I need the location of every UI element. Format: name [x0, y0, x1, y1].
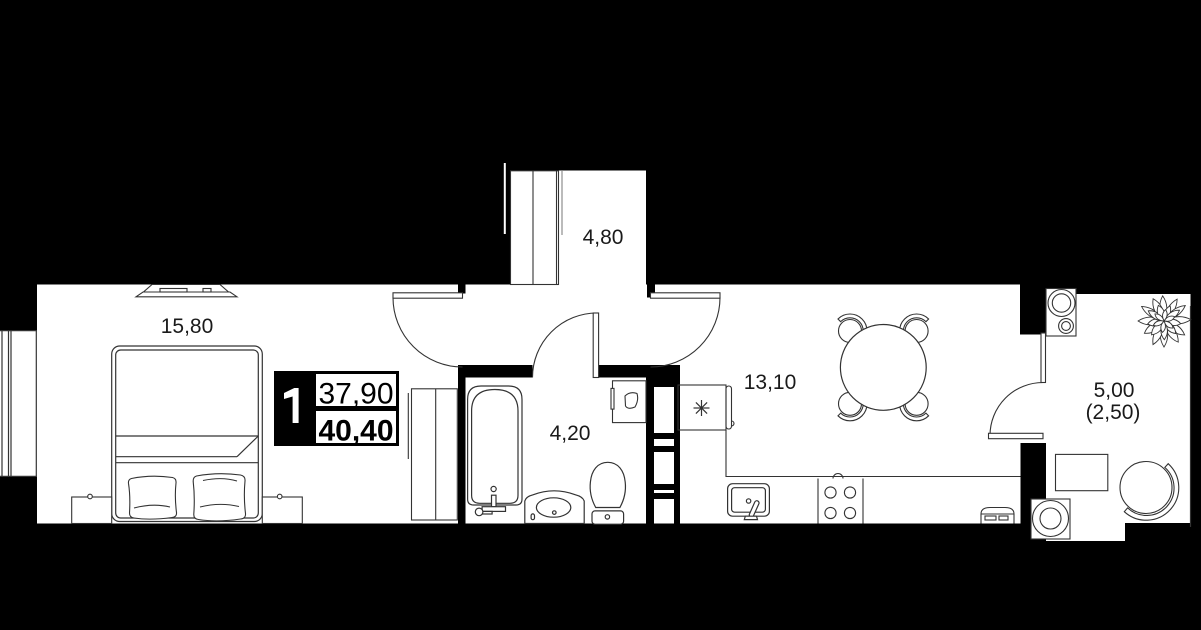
svg-text:37,90: 37,90: [318, 378, 393, 411]
svg-text:4,20: 4,20: [550, 422, 591, 445]
svg-text:5,00: 5,00: [1094, 379, 1135, 402]
svg-text:(2,50): (2,50): [1086, 401, 1141, 424]
svg-text:4,80: 4,80: [583, 226, 624, 249]
svg-text:40,40: 40,40: [318, 415, 393, 448]
svg-text:13,10: 13,10: [744, 371, 797, 394]
svg-text:15,80: 15,80: [161, 315, 214, 338]
